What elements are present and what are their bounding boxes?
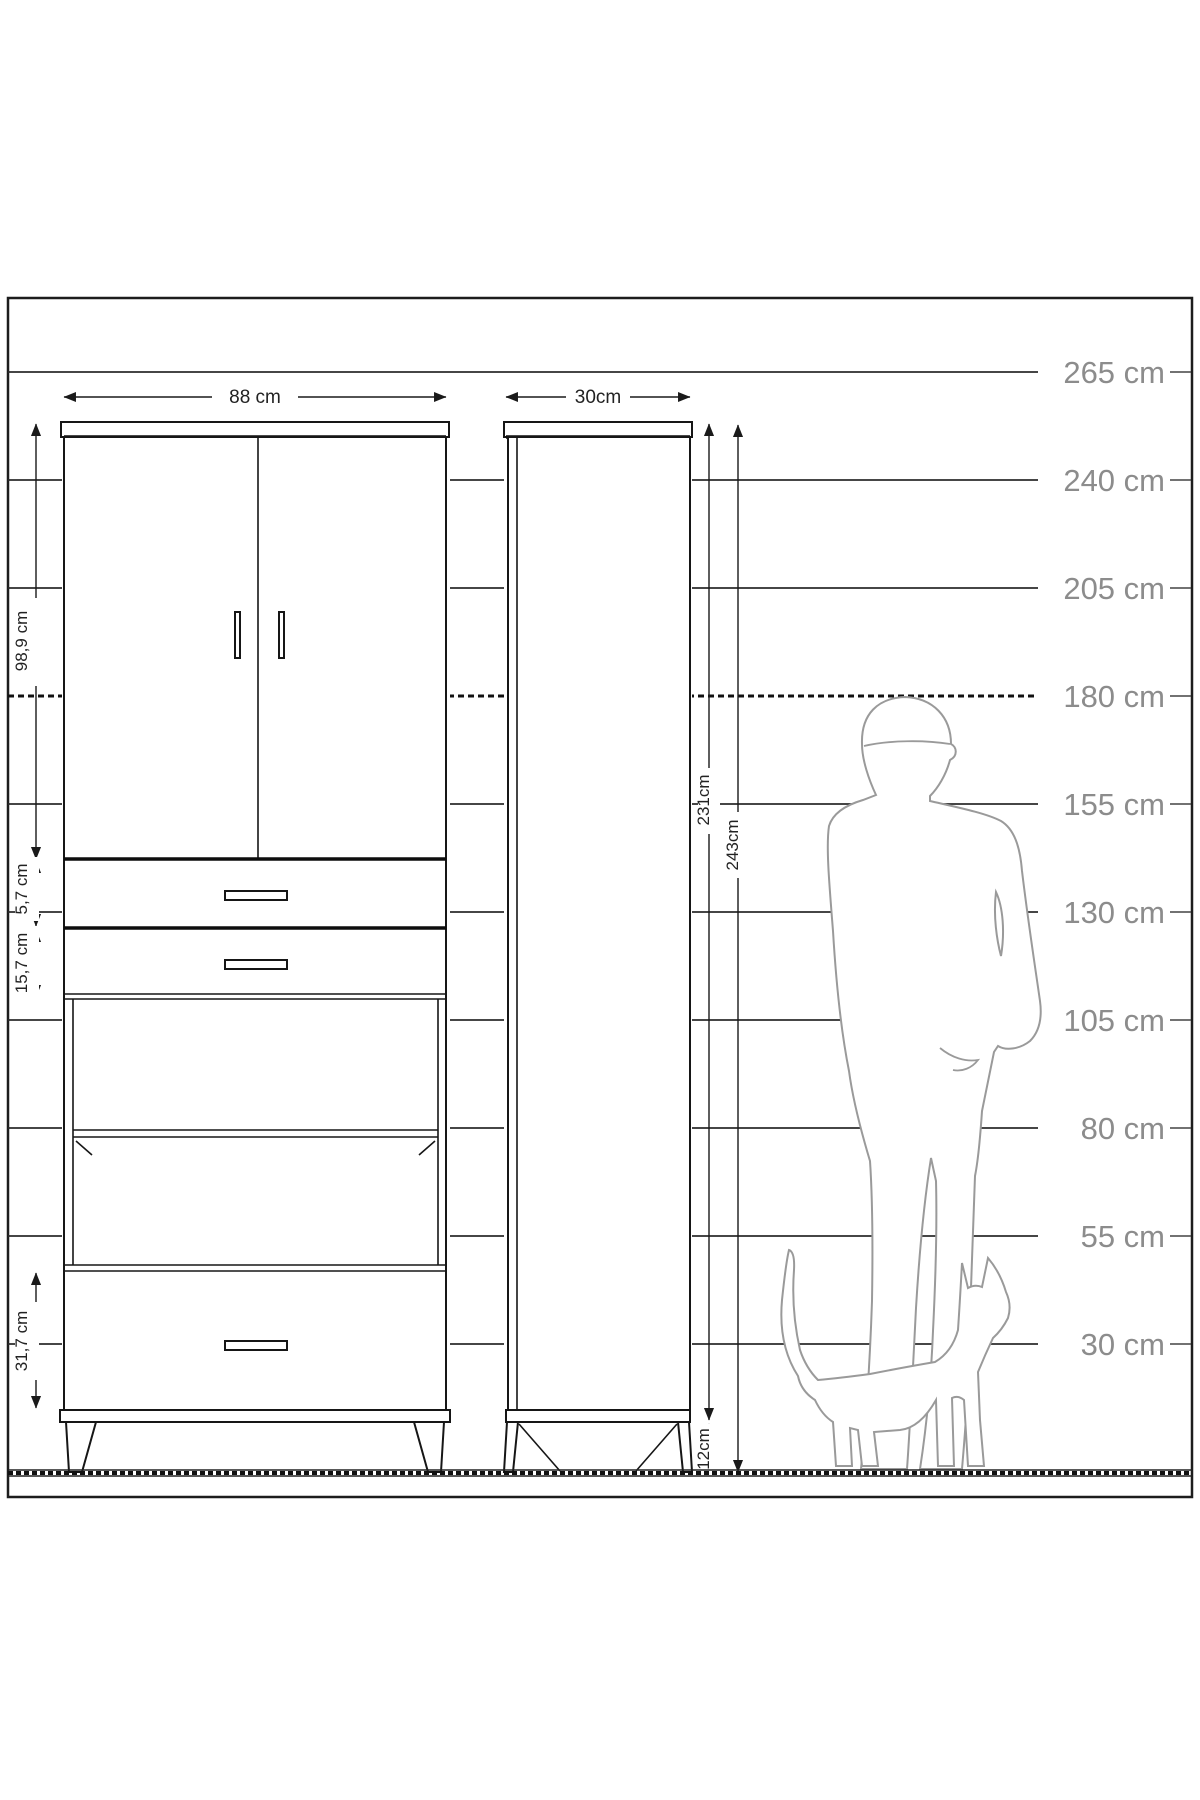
side-depth-label: 30cm [575, 387, 621, 408]
technical-drawing-page: 265 cm 240 cm 205 cm 180 cm 155 cm 130 c… [0, 0, 1200, 1800]
scale-label-30: 30 cm [1081, 1327, 1165, 1362]
carcass-height-label: 231cm [694, 774, 713, 825]
side-right-leg [678, 1422, 692, 1472]
dim-second-drawer: 15,7 cm [12, 926, 39, 1000]
dim-leg-height: 12cm [694, 1424, 720, 1474]
bottom-drawer-handle [225, 1341, 287, 1350]
dim-top-drawer: 5,7 cm [12, 857, 39, 926]
door-section-height-label: 98,9 cm [12, 611, 31, 671]
dim-total-height: 243cm [723, 425, 749, 1472]
cabinet-side-view [504, 420, 692, 1472]
front-carcass [64, 437, 446, 1410]
front-base-board [60, 1410, 450, 1422]
left-door-handle [235, 612, 240, 658]
man-silhouette [828, 697, 1041, 1469]
drawing-canvas: 265 cm 240 cm 205 cm 180 cm 155 cm 130 c… [0, 0, 1200, 1800]
leg-height-label: 12cm [694, 1428, 713, 1470]
scale-label-240: 240 cm [1063, 463, 1165, 498]
dim-carcass-height: 231cm [694, 424, 720, 1420]
scale-label-55: 55 cm [1081, 1219, 1165, 1254]
total-height-label: 243cm [723, 819, 742, 870]
right-door-handle [279, 612, 284, 658]
dim-door-section: 98,9 cm [12, 424, 39, 859]
bottom-drawer-height-label: 31,7 cm [12, 1311, 31, 1371]
scale-label-80: 80 cm [1081, 1111, 1165, 1146]
side-top-panel [504, 422, 692, 437]
scale-line-265: 265 cm [8, 355, 1191, 390]
front-width-label: 88 cm [229, 387, 281, 408]
dim-bottom-drawer: 31,7 cm [12, 1273, 39, 1408]
scale-label-205: 205 cm [1063, 571, 1165, 606]
scale-label-155: 155 cm [1063, 787, 1165, 822]
ground-line [8, 1470, 1192, 1476]
front-left-leg [66, 1422, 96, 1472]
drawer2-handle [225, 960, 287, 969]
dim-side-depth: 30cm [506, 387, 690, 408]
side-leg-brace-right [636, 1424, 677, 1471]
top-drawer-height-label: 5,7 cm [12, 863, 31, 914]
cabinet-front-view [60, 420, 450, 1472]
scale-label-180: 180 cm [1063, 679, 1165, 714]
drawer1-handle [225, 891, 287, 900]
scale-label-265: 265 cm [1063, 355, 1165, 390]
side-carcass [508, 437, 690, 1410]
side-left-leg [504, 1422, 518, 1472]
front-top-panel [61, 422, 449, 437]
side-base-board [506, 1410, 690, 1422]
scale-label-130: 130 cm [1063, 895, 1165, 930]
dim-front-width: 88 cm [64, 387, 446, 408]
scale-label-105: 105 cm [1063, 1003, 1165, 1038]
side-leg-brace-left [519, 1424, 560, 1471]
man-outline [828, 697, 1041, 1469]
front-right-leg [414, 1422, 444, 1472]
second-drawer-height-label: 15,7 cm [12, 933, 31, 993]
